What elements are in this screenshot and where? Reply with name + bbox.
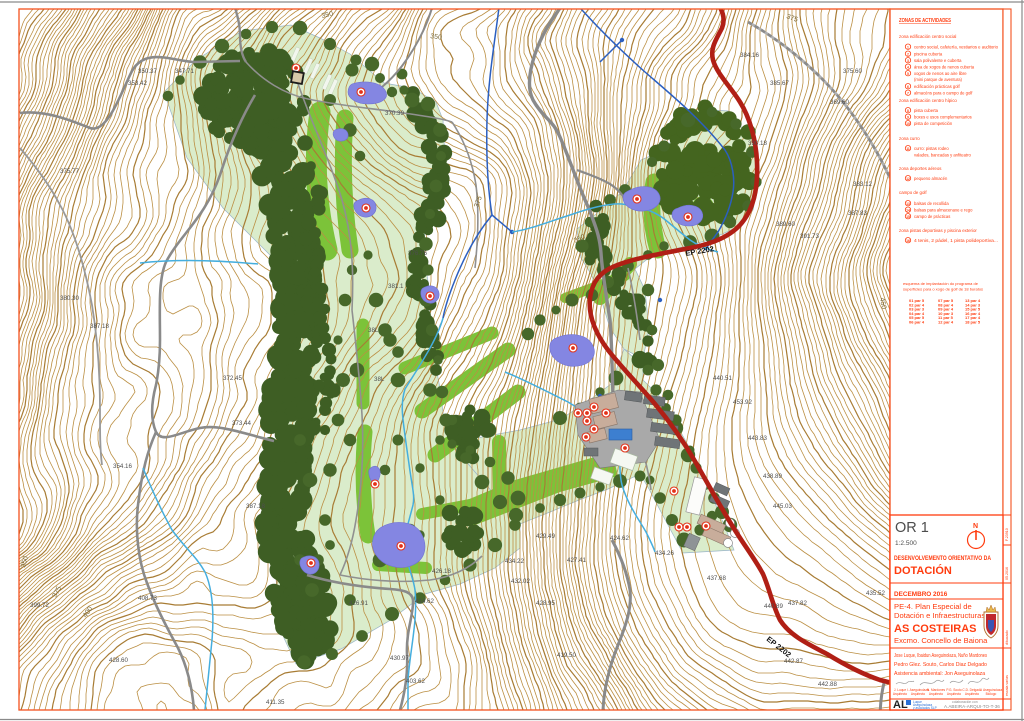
svg-text:Pedro Glez. Souto, Carlos Diaz: Pedro Glez. Souto, Carlos Diaz Delgado: [894, 662, 987, 668]
svg-text:8: 8: [907, 109, 909, 113]
svg-text:Biólogo: Biólogo: [986, 692, 997, 696]
svg-text:superficies para o xogo de gol: superficies para o xogo de golf de 18 bu…: [903, 287, 983, 292]
svg-text:438.89: 438.89: [763, 473, 782, 480]
svg-text:zona pistas deportivas y pisci: zona pistas deportivas y piscina exterio…: [899, 228, 977, 233]
svg-text:PE-4. Plan Especial de: PE-4. Plan Especial de: [894, 602, 972, 611]
svg-text:411.35: 411.35: [266, 699, 285, 706]
svg-text:campo de golf: campo de golf: [899, 190, 927, 195]
svg-text:piscina cuberta: piscina cuberta: [914, 52, 943, 57]
svg-text:DECEMBRO 2016: DECEMBRO 2016: [894, 591, 948, 598]
svg-text:Asistencia ambiental: Jon Aseg: Asistencia ambiental: Jon Aseguinolaza: [894, 671, 985, 677]
svg-text:12: 12: [906, 177, 910, 181]
svg-text:curro: pistas rodeo: curro: pistas rodeo: [914, 146, 949, 151]
svg-text:353.42: 353.42: [128, 80, 147, 87]
svg-text:DESENVOLVEMENTO ORIENTATIVO DA: DESENVOLVEMENTO ORIENTATIVO DA: [894, 556, 992, 562]
svg-text:372.45: 372.45: [223, 375, 242, 382]
svg-text:escala varias: escala varias: [1005, 675, 1009, 696]
svg-text:1: 1: [907, 46, 909, 50]
svg-text:y asociados SLP: y asociados SLP: [913, 706, 937, 710]
svg-text:zona curro: zona curro: [899, 136, 920, 141]
svg-text:zona deportes aéreos: zona deportes aéreos: [899, 166, 942, 171]
svg-text:387.18: 387.18: [90, 323, 109, 330]
svg-text:453.92: 453.92: [733, 399, 752, 406]
svg-text:14: 14: [906, 209, 910, 213]
svg-text:15: 15: [906, 215, 910, 219]
svg-text:384.16: 384.16: [740, 52, 759, 59]
svg-text:edificación prácticas golf: edificación prácticas golf: [914, 84, 960, 89]
svg-text:440.51: 440.51: [713, 375, 732, 382]
svg-text:10: 10: [906, 122, 910, 126]
svg-text:05.2016: 05.2016: [1005, 567, 1009, 580]
svg-text:AS COSTEIRAS: AS COSTEIRAS: [894, 623, 977, 635]
svg-text:Arquitecto: Arquitecto: [929, 692, 944, 696]
svg-text:1:2.500: 1:2.500: [895, 540, 917, 547]
svg-text:11: 11: [906, 147, 910, 151]
svg-text:387.18: 387.18: [246, 503, 265, 510]
svg-text:Jose Luque, Ibaidun Aseguinola: Jose Luque, Ibaidun Aseguinolaza, Nuño M…: [894, 653, 987, 659]
svg-text:391.73: 391.73: [800, 233, 819, 240]
svg-text:428.60: 428.60: [109, 657, 128, 664]
svg-text:(mini parque de aventura): (mini parque de aventura): [914, 77, 963, 82]
svg-text:375.77: 375.77: [60, 168, 79, 175]
svg-text:387.83: 387.83: [848, 210, 867, 217]
svg-text:13: 13: [906, 202, 910, 206]
svg-text:369.60: 369.60: [830, 99, 849, 106]
svg-text:350.37: 350.37: [138, 68, 157, 75]
svg-text:16: 16: [906, 239, 910, 243]
svg-text:6: 6: [907, 85, 909, 89]
svg-text:38L: 38L: [368, 327, 379, 334]
svg-text:ZONAS DE ACTIVIDADES: ZONAS DE ACTIVIDADES: [899, 18, 952, 24]
svg-text:9: 9: [907, 116, 909, 120]
svg-text:xogos de nenos ao aire libre: xogos de nenos ao aire libre: [914, 71, 967, 76]
svg-text:DOTACIÓN: DOTACIÓN: [894, 564, 952, 577]
svg-text:4 tenis, 2 pádel, 1 pista poli: 4 tenis, 2 pádel, 1 pista polideportiva.…: [914, 238, 998, 243]
svg-text:Arquitecto: Arquitecto: [965, 692, 980, 696]
svg-text:443.83: 443.83: [748, 435, 767, 442]
svg-text:375.60: 375.60: [843, 68, 862, 75]
svg-text:426.18: 426.18: [432, 568, 451, 575]
svg-text:Dotación e Infraestructuras: Dotación e Infraestructuras: [894, 611, 985, 620]
svg-text:381.1: 381.1: [388, 283, 404, 290]
svg-text:437.82: 437.82: [788, 600, 807, 607]
svg-text:370.39: 370.39: [385, 110, 404, 117]
svg-text:Arquitecto: Arquitecto: [947, 692, 962, 696]
svg-text:399.72: 399.72: [30, 602, 49, 609]
svg-text:campo de prácticas: campo de prácticas: [914, 214, 950, 219]
svg-text:419.50: 419.50: [557, 652, 576, 659]
svg-text:426.91: 426.91: [349, 600, 368, 607]
svg-text:380.30: 380.30: [60, 295, 79, 302]
svg-text:2: 2: [907, 53, 909, 57]
svg-text:385.67: 385.67: [770, 80, 789, 87]
svg-text:403.62: 403.62: [406, 678, 425, 685]
svg-text:3: 3: [907, 59, 909, 63]
svg-text:pequeno almacén: pequeno almacén: [914, 176, 948, 181]
svg-text:373.44: 373.44: [232, 420, 251, 427]
svg-text:390.18: 390.18: [748, 140, 767, 147]
svg-text:área de xogos de nenos cuberta: área de xogos de nenos cuberta: [914, 65, 975, 70]
svg-text:445.03: 445.03: [773, 503, 792, 510]
svg-text:esquema de implantación do pro: esquema de implantación do programa de: [903, 281, 979, 286]
svg-text:pista de competición: pista de competición: [914, 121, 953, 126]
svg-text:7: 7: [907, 92, 909, 96]
svg-text:OR 1: OR 1: [895, 520, 929, 536]
svg-text:383.12: 383.12: [853, 181, 872, 188]
svg-text:442.87: 442.87: [784, 658, 803, 665]
svg-text:sala polivalente e cuberta: sala polivalente e cuberta: [914, 58, 962, 63]
svg-text:347.71: 347.71: [175, 68, 194, 75]
svg-text:427.41: 427.41: [567, 557, 586, 564]
svg-text:440.89: 440.89: [764, 603, 783, 610]
svg-text:A.ABEIRA-ARQUI-TO-T-36: A.ABEIRA-ARQUI-TO-T-36: [944, 704, 1000, 709]
svg-text:valados, bancadas y anfiteatro: valados, bancadas y anfiteatro: [914, 153, 971, 158]
svg-text:balsas para almacenaxe e rego: balsas para almacenaxe e rego: [914, 208, 973, 213]
svg-text:437.68: 437.68: [707, 575, 726, 582]
svg-text:434.22: 434.22: [505, 558, 524, 565]
svg-text:38L: 38L: [374, 376, 385, 383]
svg-text:pista cuberta: pista cuberta: [914, 108, 939, 113]
svg-text:430.97: 430.97: [390, 655, 409, 662]
svg-text:F.23910: F.23910: [1005, 528, 1009, 541]
svg-text:5: 5: [907, 72, 909, 76]
svg-text:4: 4: [907, 66, 909, 70]
svg-text:376.76: 376.76: [408, 250, 427, 257]
svg-text:408.73: 408.73: [138, 595, 157, 602]
svg-text:428.95: 428.95: [536, 600, 555, 607]
svg-text:18 par 5: 18 par 5: [965, 320, 981, 325]
svg-text:AL: AL: [893, 699, 908, 711]
svg-text:414.62: 414.62: [415, 598, 434, 605]
svg-text:Arquitecto: Arquitecto: [911, 692, 926, 696]
svg-text:432.02: 432.02: [511, 578, 530, 585]
svg-text:06 par 4: 06 par 4: [909, 320, 925, 325]
svg-text:zona edificación centro social: zona edificación centro social: [899, 34, 956, 39]
svg-text:zona edificación centro hípico: zona edificación centro hípico: [899, 98, 957, 103]
svg-text:429.49: 429.49: [536, 533, 555, 540]
svg-text:389.60: 389.60: [776, 221, 795, 228]
svg-text:balsas de recollida: balsas de recollida: [914, 201, 949, 206]
svg-text:dibuxado: dibuxado: [1005, 630, 1009, 645]
svg-text:centro social, cafetería, vest: centro social, cafetería, vestiarios e a…: [914, 45, 999, 50]
svg-text:Excmo. Concello de Baiona: Excmo. Concello de Baiona: [894, 636, 988, 645]
svg-text:354.16: 354.16: [113, 463, 132, 470]
svg-text:N: N: [973, 523, 978, 530]
svg-text:434.26: 434.26: [655, 550, 674, 557]
svg-text:Arquitecto: Arquitecto: [893, 692, 908, 696]
svg-text:boxes e usos complementarios: boxes e usos complementarios: [914, 115, 972, 120]
svg-text:442.88: 442.88: [818, 681, 837, 688]
svg-text:424.62: 424.62: [610, 535, 629, 542]
svg-text:almacéns para o campo de golf: almacéns para o campo de golf: [914, 91, 973, 96]
svg-text:12 par 4: 12 par 4: [938, 320, 954, 325]
svg-text:435.52: 435.52: [866, 590, 885, 597]
